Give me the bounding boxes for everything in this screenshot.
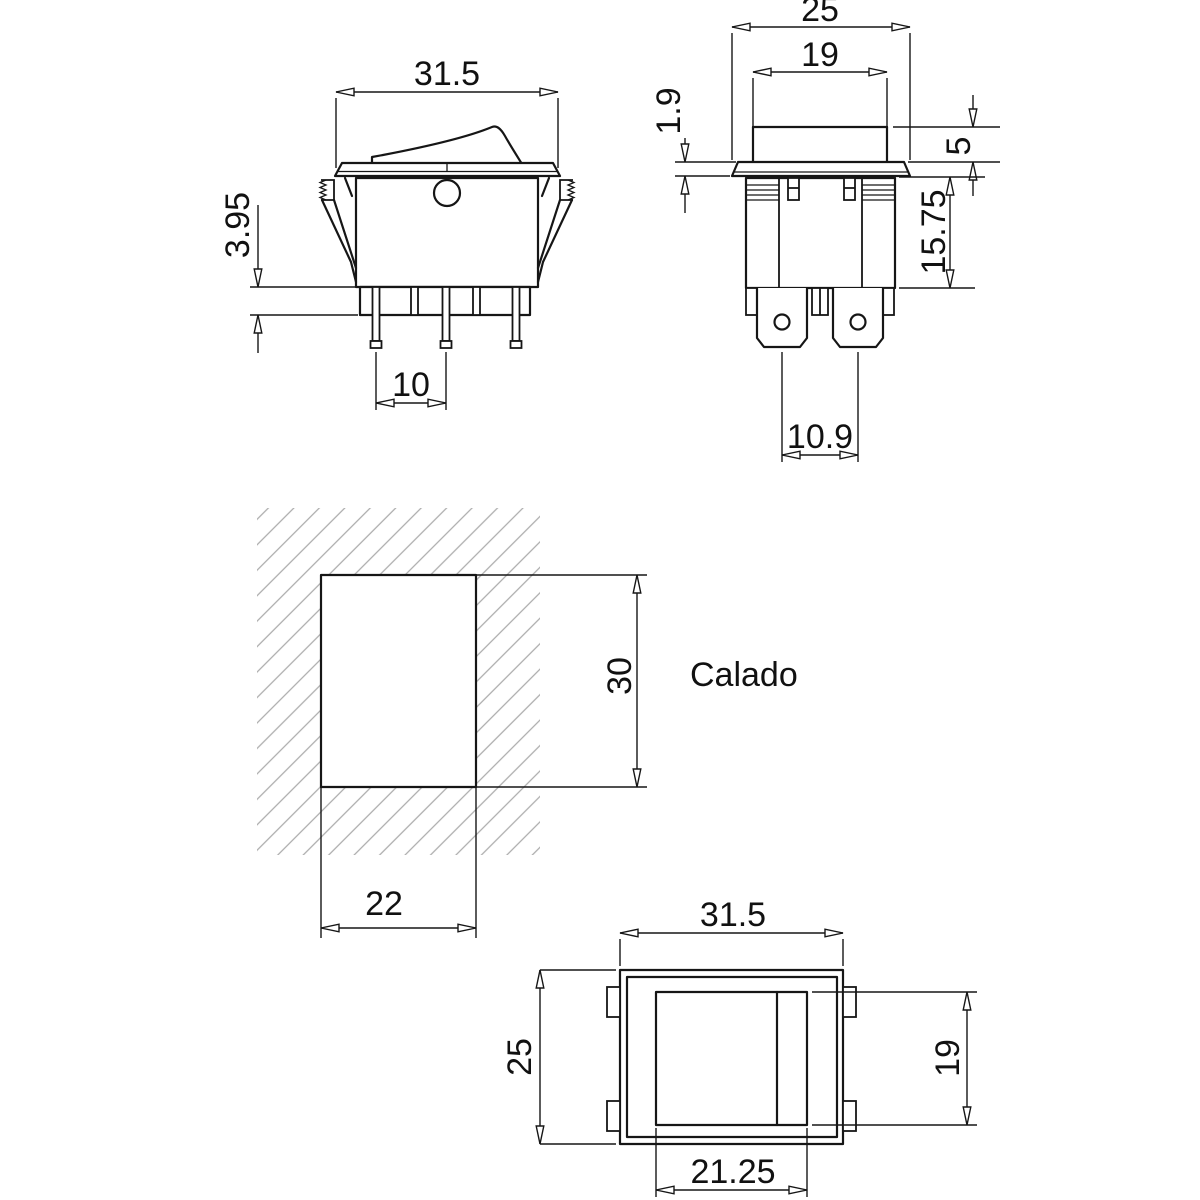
bezel-width-dim-label: 25 <box>801 0 839 29</box>
rocker-actuator-profile <box>372 126 522 164</box>
panel-cutout-view: 30 22 Calado <box>257 508 798 938</box>
bezel-thickness-dim-label: 1.9 <box>650 87 688 134</box>
pin-pitch-dim-label: 10 <box>392 366 430 404</box>
mounting-clip-right <box>538 178 574 282</box>
terminal-hole <box>851 315 866 330</box>
rocker-height-dim-label: 5 <box>940 137 978 156</box>
rocker-switch-dimension-drawing: 31.5 <box>0 0 1200 1200</box>
clip-serrations <box>568 180 574 200</box>
terminal-step <box>883 288 894 315</box>
top-depth-dim-label: 25 <box>501 1038 539 1076</box>
top-width-dim-label: 31.5 <box>700 896 766 934</box>
pivot-hole <box>434 180 460 206</box>
cutout-note-label: Calado <box>690 656 798 694</box>
panel-hatching <box>257 508 540 855</box>
terminal-stub <box>411 287 418 315</box>
opening-height-dim-label: 19 <box>929 1039 967 1077</box>
rocker-opening <box>656 992 807 1125</box>
side-width-dim-label: 31.5 <box>414 55 480 93</box>
terminal-step <box>746 288 757 315</box>
terminal-hole <box>775 315 790 330</box>
rocker-width-dim-label: 19 <box>801 36 839 74</box>
technical-drawing-page: 31.5 <box>0 0 1200 1200</box>
clip-serrations <box>320 180 326 200</box>
terminal-height-dim-label: 3.95 <box>219 192 257 258</box>
bezel-front <box>732 162 910 176</box>
terminal-pitch-dim-label: 10.9 <box>787 418 853 456</box>
cutout-rectangle <box>321 575 476 787</box>
body-height-dim-label: 15.75 <box>915 189 953 274</box>
side-view: 31.5 <box>219 55 574 410</box>
opening-width-dim-label: 21.25 <box>690 1153 775 1191</box>
mounting-clip-left <box>320 178 356 282</box>
front-view: 25 19 <box>650 0 1000 462</box>
blade-terminals <box>746 288 894 347</box>
cutout-width-dim-label: 22 <box>365 885 403 923</box>
cutout-height-dim-label: 30 <box>601 657 639 695</box>
top-view: 31.5 25 19 21.25 <box>501 896 977 1197</box>
terminal-stub <box>473 287 480 315</box>
